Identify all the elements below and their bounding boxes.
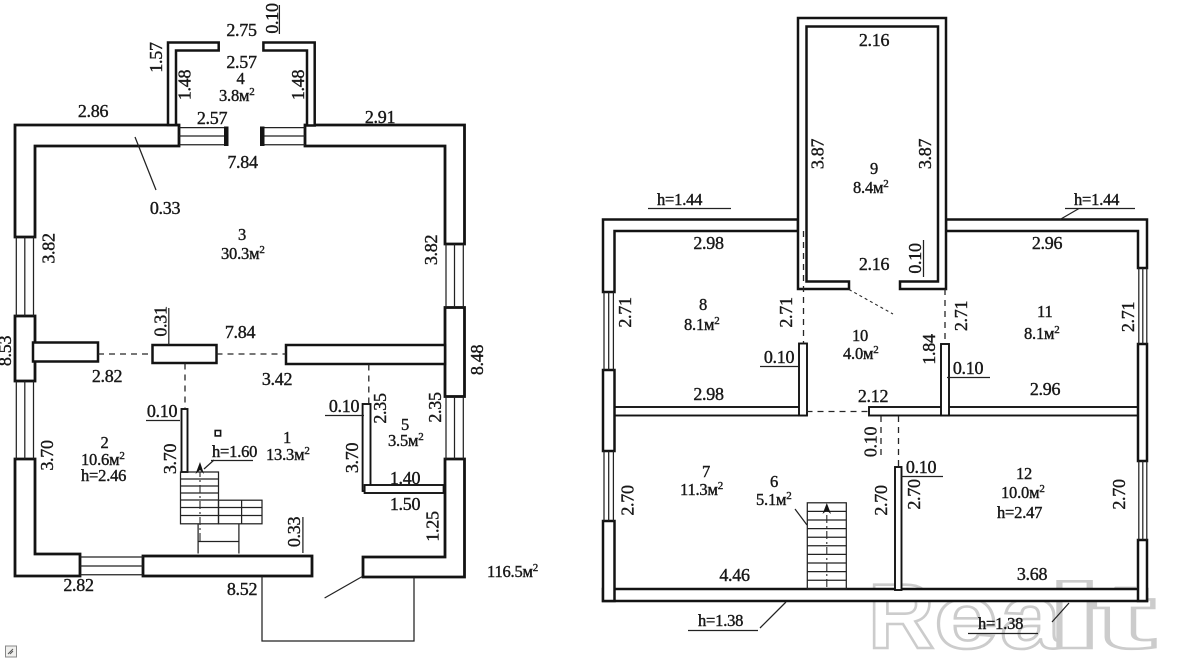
svg-text:0.10: 0.10 (262, 3, 282, 34)
svg-text:h=1.44: h=1.44 (1074, 190, 1119, 209)
svg-text:10.0м2: 10.0м2 (1001, 483, 1045, 502)
svg-text:13.3м2: 13.3м2 (266, 445, 310, 464)
svg-text:3.87: 3.87 (808, 139, 828, 170)
svg-text:2.12: 2.12 (858, 386, 888, 406)
svg-text:3.70: 3.70 (342, 443, 362, 474)
svg-text:2.71: 2.71 (776, 297, 796, 327)
svg-text:2.16: 2.16 (859, 30, 890, 50)
svg-text:h=1.44: h=1.44 (657, 190, 702, 209)
svg-text:2.70: 2.70 (871, 485, 891, 516)
svg-text:2.71: 2.71 (951, 301, 971, 331)
svg-text:2.82: 2.82 (92, 366, 122, 386)
svg-text:2.98: 2.98 (693, 233, 724, 253)
svg-text:8.4м2: 8.4м2 (853, 178, 889, 197)
svg-text:2.91: 2.91 (365, 107, 395, 127)
svg-text:9: 9 (870, 159, 878, 178)
svg-text:6: 6 (770, 472, 778, 491)
svg-text:2.71: 2.71 (615, 297, 635, 327)
svg-text:8.52: 8.52 (227, 579, 257, 599)
svg-text:3.42: 3.42 (262, 369, 292, 389)
svg-text:3.8м2: 3.8м2 (219, 86, 255, 105)
svg-text:8: 8 (699, 295, 707, 314)
svg-text:1.48: 1.48 (288, 70, 308, 101)
svg-text:0.10: 0.10 (147, 401, 178, 421)
svg-text:3.70: 3.70 (160, 444, 180, 475)
svg-text:h=1.38: h=1.38 (978, 614, 1023, 633)
svg-text:3.5м2: 3.5м2 (388, 431, 424, 450)
svg-text:2.82: 2.82 (63, 575, 93, 595)
svg-text:7.84: 7.84 (225, 322, 256, 342)
svg-text:2.75: 2.75 (226, 20, 257, 40)
svg-text:7: 7 (702, 462, 710, 481)
svg-text:8.53: 8.53 (0, 336, 15, 367)
svg-text:2.57: 2.57 (197, 108, 228, 128)
svg-text:1.84: 1.84 (919, 334, 939, 365)
svg-text:2.70: 2.70 (904, 479, 924, 510)
svg-text:3.87: 3.87 (915, 139, 935, 170)
svg-text:11.3м2: 11.3м2 (680, 480, 723, 499)
svg-text:2.98: 2.98 (693, 384, 724, 404)
svg-text:2.35: 2.35 (425, 392, 445, 423)
svg-text:30.3м2: 30.3м2 (221, 244, 265, 263)
svg-text:8.48: 8.48 (467, 345, 487, 376)
svg-text:2.35: 2.35 (370, 393, 390, 424)
svg-text:4.46: 4.46 (719, 565, 750, 585)
svg-text:1.25: 1.25 (423, 511, 443, 542)
svg-text:h=2.47: h=2.47 (997, 503, 1042, 522)
svg-text:8.1м2: 8.1м2 (684, 315, 720, 334)
svg-text:3: 3 (238, 225, 246, 244)
svg-text:0.33: 0.33 (284, 517, 304, 548)
svg-text:2.96: 2.96 (1030, 379, 1061, 399)
svg-text:1.57: 1.57 (146, 42, 166, 73)
svg-text:2.70: 2.70 (618, 485, 638, 516)
svg-text:0.10: 0.10 (764, 347, 795, 367)
svg-text:0.33: 0.33 (150, 198, 181, 218)
svg-text:0.10: 0.10 (329, 396, 360, 416)
svg-text:2.86: 2.86 (78, 101, 109, 121)
svg-text:2.96: 2.96 (1032, 233, 1063, 253)
svg-text:3.68: 3.68 (1017, 564, 1048, 584)
svg-text:3.70: 3.70 (37, 440, 57, 471)
svg-text:2.71: 2.71 (1118, 302, 1138, 332)
svg-text:11: 11 (1037, 302, 1053, 321)
svg-text:1.50: 1.50 (390, 494, 421, 514)
svg-text:10: 10 (852, 326, 868, 345)
svg-text:0.10: 0.10 (861, 427, 881, 458)
svg-text:h=1.60: h=1.60 (212, 442, 257, 461)
svg-text:h=2.46: h=2.46 (81, 466, 126, 485)
svg-text:12: 12 (1016, 464, 1032, 483)
svg-text:3.82: 3.82 (39, 233, 59, 263)
svg-text:1.40: 1.40 (390, 468, 421, 488)
svg-text:2.16: 2.16 (859, 254, 890, 274)
svg-text:0.31: 0.31 (151, 306, 171, 336)
svg-text:4.0м2: 4.0м2 (843, 344, 879, 363)
svg-text:7.84: 7.84 (227, 152, 258, 172)
svg-text:116.5м2: 116.5м2 (487, 562, 538, 581)
svg-text:3.82: 3.82 (421, 235, 441, 265)
svg-text:0.10: 0.10 (905, 243, 925, 274)
svg-text:0.10: 0.10 (906, 457, 937, 477)
svg-text:2.70: 2.70 (1109, 479, 1129, 510)
svg-text:1.48: 1.48 (175, 70, 195, 101)
svg-text:5.1м2: 5.1м2 (756, 490, 792, 509)
svg-text:8.1м2: 8.1м2 (1024, 324, 1060, 343)
svg-text:0.10: 0.10 (953, 358, 984, 378)
svg-text:h=1.38: h=1.38 (698, 611, 743, 630)
